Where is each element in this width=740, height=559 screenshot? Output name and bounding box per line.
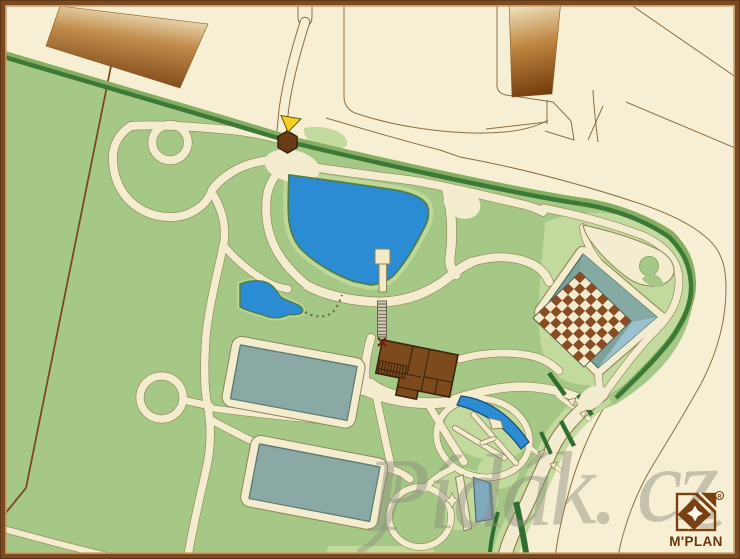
svg-text:Pídák. cz: Pídák. cz <box>364 425 721 554</box>
svg-text:R: R <box>718 494 722 500</box>
svg-text:M'PLAN: M'PLAN <box>669 534 723 549</box>
